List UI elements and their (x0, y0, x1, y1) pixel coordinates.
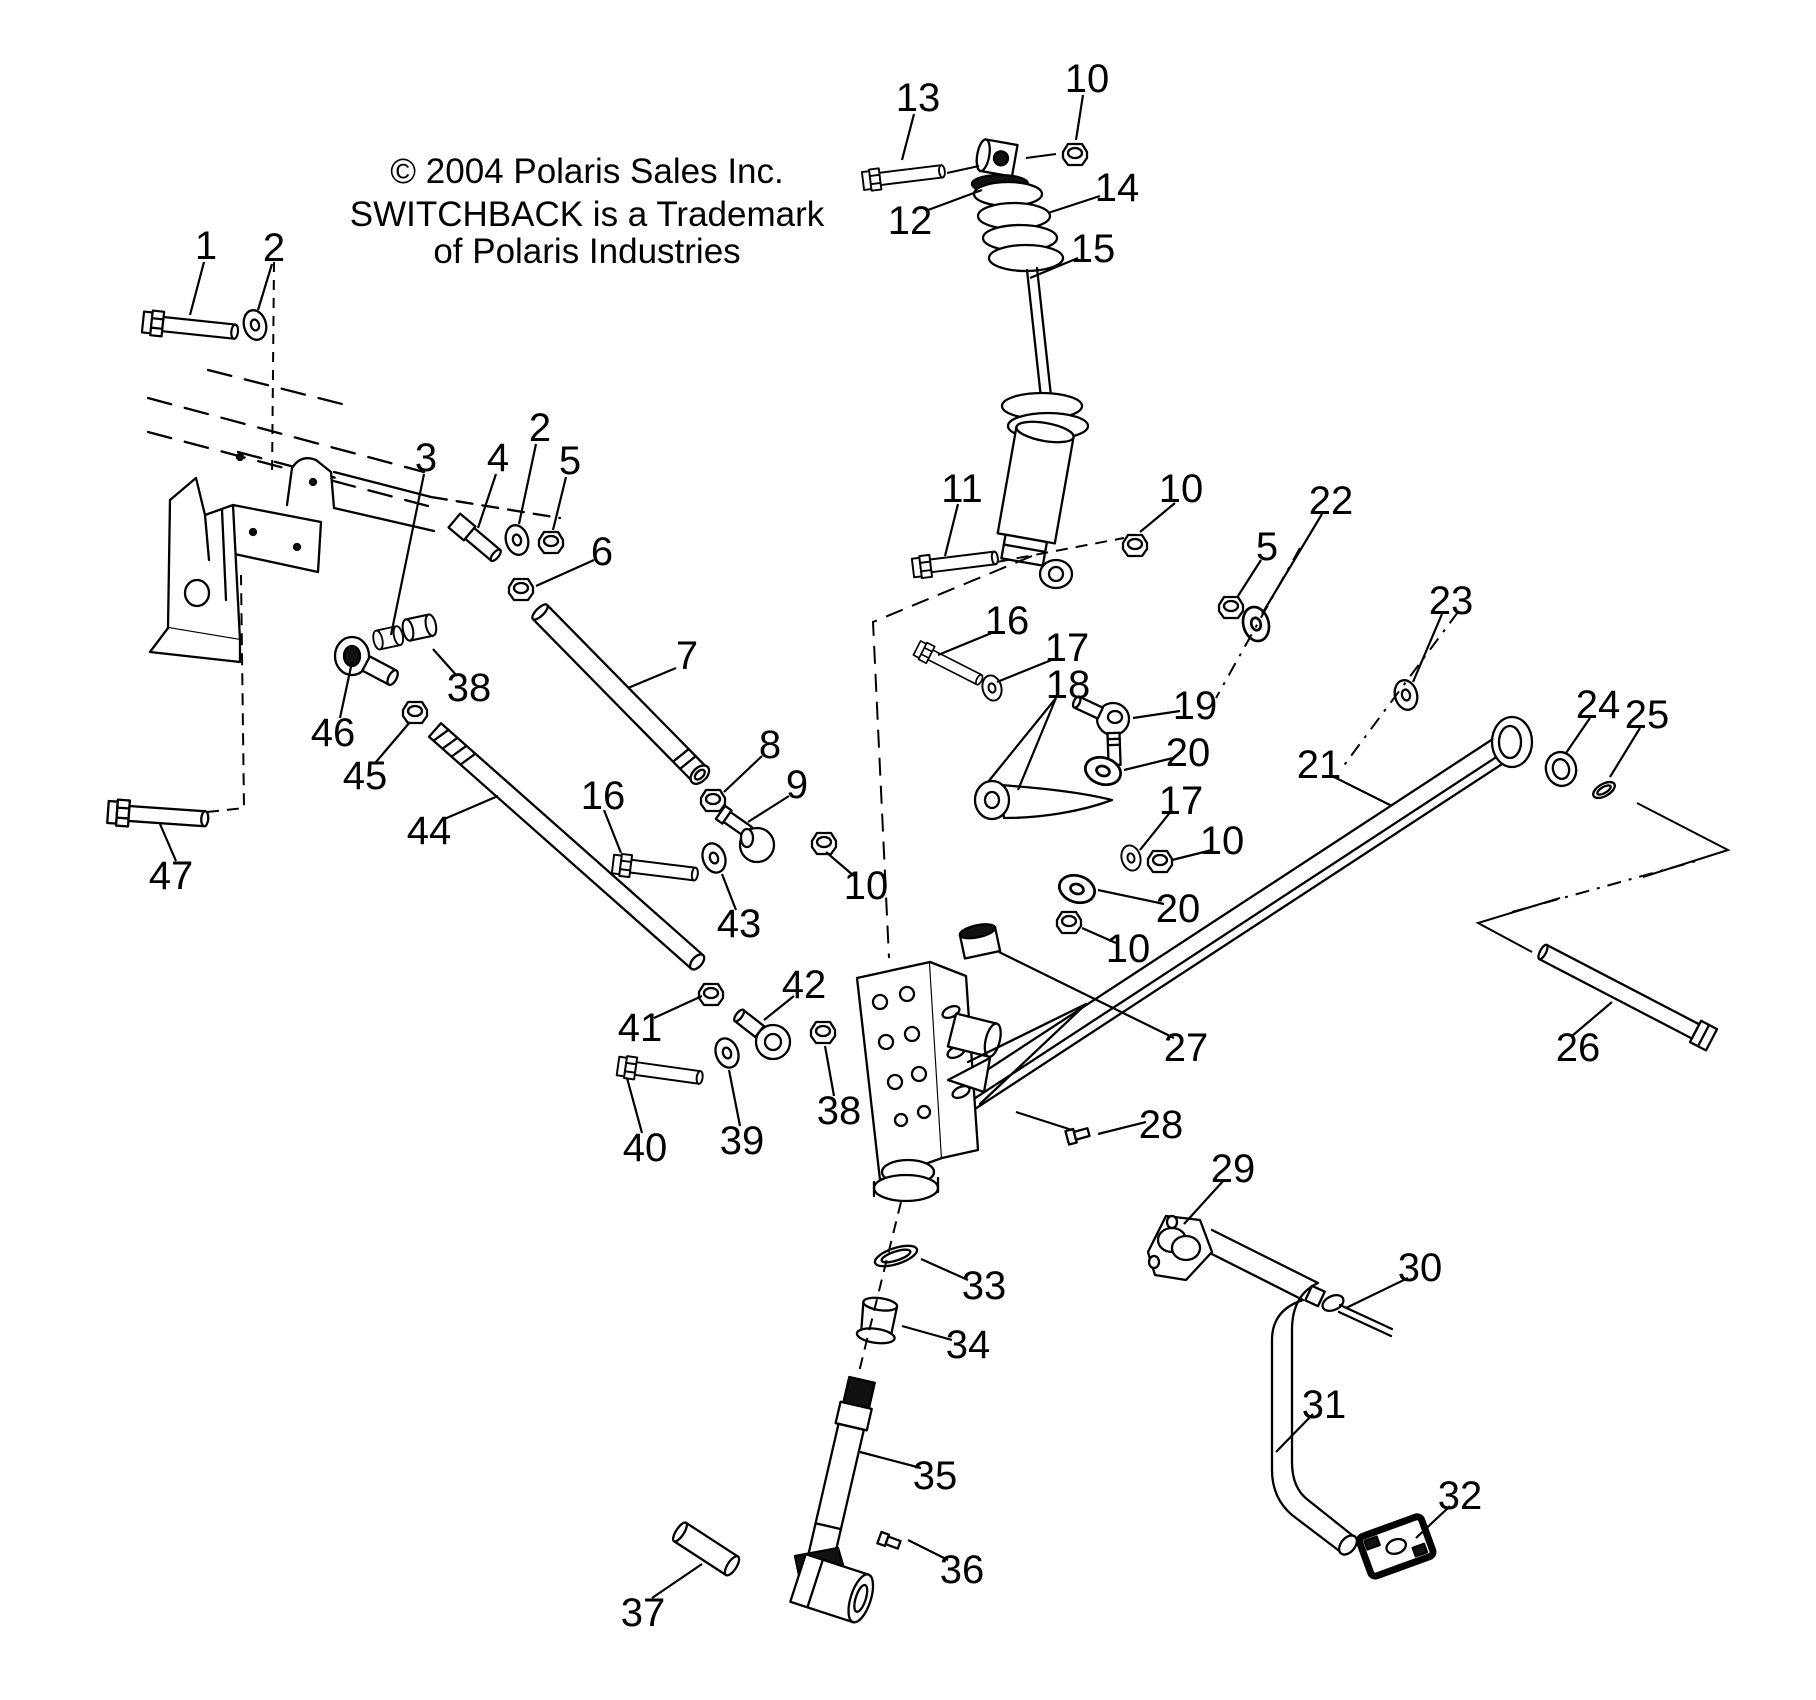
bolt-13 (862, 160, 946, 191)
copyright-line-1: © 2004 Polaris Sales Inc. (390, 152, 784, 191)
callout-11: 11 (941, 467, 983, 511)
callout-20: 20 (1156, 887, 1201, 931)
hex-nuts (403, 144, 1243, 1043)
rod-end-42 (732, 1008, 790, 1059)
callout-6: 6 (591, 530, 613, 574)
callout-7: 7 (676, 634, 698, 678)
callout-2: 2 (529, 406, 551, 450)
callout-10: 10 (1159, 467, 1204, 511)
callout-34: 34 (946, 1323, 991, 1367)
leader-lines (160, 95, 1640, 1598)
rod-end-46 (335, 637, 400, 687)
bushing-27 (959, 922, 1000, 959)
callout-1: 1 (195, 224, 217, 268)
callout-10: 10 (1200, 819, 1245, 863)
callout-21: 21 (1297, 743, 1342, 787)
callout-30: 30 (1398, 1246, 1443, 1290)
callout-23: 23 (1429, 579, 1474, 623)
callout-16: 16 (581, 774, 626, 818)
coil-spring-upper (974, 182, 1063, 271)
bolt-36 (877, 1532, 901, 1550)
bolt-16-left (612, 853, 699, 885)
parts-diagram-page: © 2004 Polaris Sales Inc. SWITCHBACK is … (0, 0, 1816, 1700)
callout-41: 41 (618, 1006, 663, 1050)
spindle-housing (857, 962, 1086, 1201)
bushing-3 (372, 625, 405, 650)
callout-43: 43 (717, 902, 762, 946)
callout-15: 15 (1071, 227, 1116, 271)
callout-47: 47 (149, 854, 194, 898)
callout-12: 12 (888, 199, 933, 243)
callout-38: 38 (447, 666, 492, 710)
callout-36: 36 (940, 1548, 985, 1592)
callout-16: 16 (985, 599, 1030, 643)
spindle-leg (790, 1554, 878, 1625)
rubber-block-32 (1358, 1515, 1434, 1577)
parts-diagram-artwork: © 2004 Polaris Sales Inc. SWITCHBACK is … (0, 0, 1816, 1700)
callout-32: 32 (1438, 1474, 1483, 1518)
callout-10: 10 (1106, 927, 1151, 971)
callout-42: 42 (782, 963, 827, 1007)
spacer-tube-37 (671, 1521, 742, 1578)
callout-28: 28 (1139, 1103, 1184, 1147)
bolt-16-right (913, 640, 986, 690)
tie-rod-7 (529, 601, 712, 787)
copyright-line-2: SWITCHBACK is a Trademark (350, 195, 825, 234)
callout-27: 27 (1164, 1026, 1209, 1070)
callout-45: 45 (343, 754, 388, 798)
shock-shaft (1027, 268, 1051, 398)
callout-37: 37 (621, 1591, 666, 1635)
radius-rod-44 (429, 723, 707, 972)
steering-post (790, 1242, 919, 1626)
callout-24: 24 (1576, 683, 1621, 727)
spindle-35 (805, 1376, 878, 1563)
callout-18: 18 (1046, 663, 1091, 707)
steering-arm-18 (975, 781, 1112, 819)
callout-46: 46 (311, 711, 356, 755)
callout-26: 26 (1556, 1026, 1601, 1070)
callout-2: 2 (263, 226, 285, 270)
o-ring-33 (873, 1242, 920, 1271)
trailing-arm (954, 717, 1532, 1113)
bushing-38a (401, 614, 438, 642)
callout-labels: 1213101214152345611102252316171819202425… (149, 57, 1670, 1635)
callout-14: 14 (1095, 166, 1140, 210)
callout-38: 38 (817, 1089, 862, 1133)
callout-19: 19 (1173, 684, 1218, 728)
callout-31: 31 (1302, 1383, 1347, 1427)
shock-body (994, 418, 1076, 567)
fitting-4 (449, 514, 504, 564)
callout-9: 9 (786, 763, 808, 807)
callout-5: 5 (1256, 525, 1278, 569)
bushing-24 (1542, 749, 1580, 790)
frame-bracket (148, 370, 560, 662)
callout-3: 3 (415, 436, 437, 480)
o-ring-25 (1591, 779, 1618, 801)
callout-10: 10 (1065, 57, 1110, 101)
callout-29: 29 (1211, 1147, 1256, 1191)
callout-5: 5 (559, 439, 581, 483)
callout-35: 35 (913, 1454, 958, 1498)
callout-33: 33 (962, 1264, 1007, 1308)
callout-25: 25 (1625, 693, 1670, 737)
bolt-30 (1305, 1286, 1392, 1336)
bolt-47 (107, 799, 209, 832)
bushing-34 (856, 1296, 900, 1346)
callout-22: 22 (1309, 479, 1354, 523)
callout-39: 39 (720, 1119, 765, 1163)
callout-20: 20 (1166, 731, 1211, 775)
callout-13: 13 (896, 76, 941, 120)
hex-bolts (107, 160, 1090, 1550)
bolt-11 (912, 547, 999, 579)
copyright-line-3: of Polaris Industries (433, 232, 740, 271)
callout-4: 4 (487, 436, 509, 480)
callout-8: 8 (759, 723, 781, 767)
washers (240, 308, 1420, 1071)
callout-40: 40 (623, 1126, 668, 1170)
callout-17: 17 (1159, 779, 1204, 823)
copyright-notice: © 2004 Polaris Sales Inc. SWITCHBACK is … (350, 152, 825, 271)
callout-10: 10 (844, 864, 889, 908)
callout-44: 44 (407, 809, 452, 853)
mount-flange-29 (1148, 1216, 1212, 1280)
